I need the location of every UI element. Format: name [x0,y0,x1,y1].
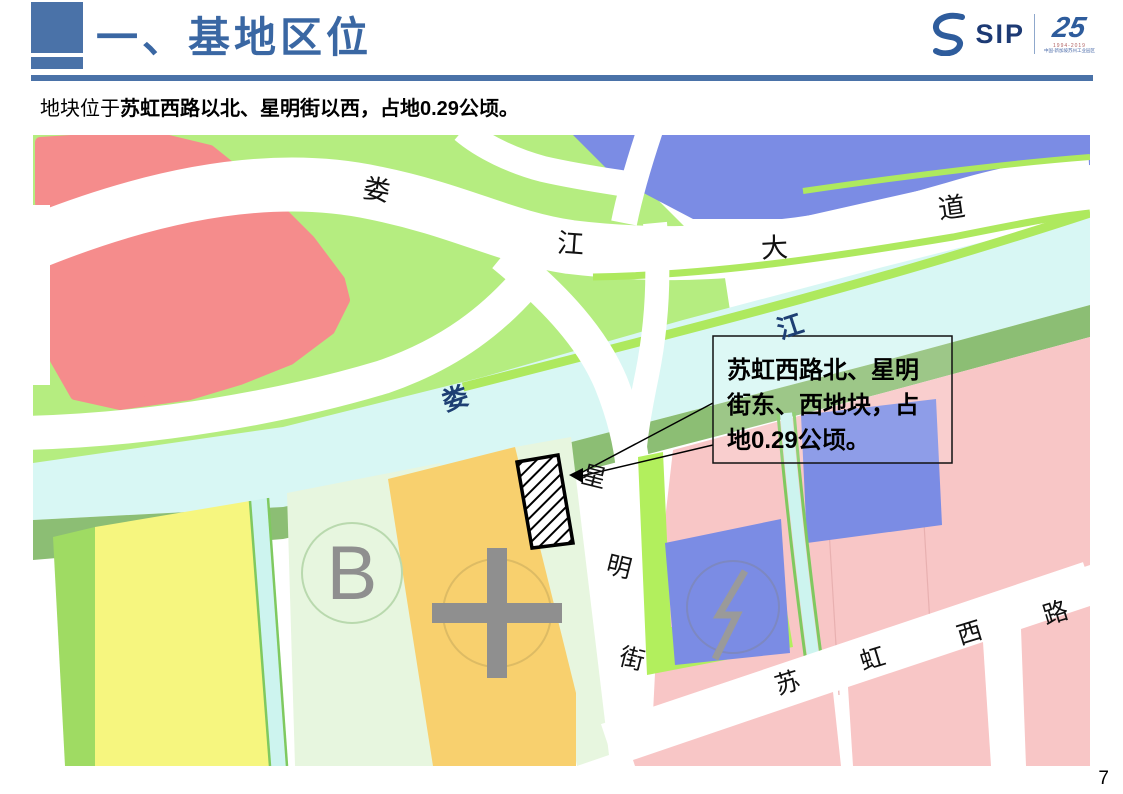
avenue-label-char: 江 [556,228,585,260]
avenue-label-char: 道 [936,191,967,224]
avenue-label-char: 娄 [361,173,393,207]
site-location-map: B 苏虹西路北、星明 街东、西地块，占 地0.29公顷。 娄 江 大 道 娄 江… [33,135,1090,766]
pink-block-southeast [1021,606,1090,766]
parcel-b-label: B [327,531,378,616]
anniversary-25: 25 [1051,14,1088,43]
hospital-cross-icon [487,548,507,678]
slide-subtitle: 地块位于苏虹西路以北、星明街以西，占地0.29公顷。 [40,92,519,121]
yellow-parcel [95,501,270,766]
callout-text-line3: 地0.29公顷。 [727,427,870,454]
avenue-label-char: 大 [760,232,789,263]
page-number: 7 [1098,768,1109,790]
subtitle-emphasis: 苏虹西路以北、星明街以西，占地0.29公顷。 [120,98,519,120]
header-underline [31,75,1093,81]
title-decoration-bar [31,57,83,69]
callout-text-line2: 街东、西地块，占 [726,391,919,419]
anniversary-logo: 25 1994-2019 中国-新加坡苏州工业园区 [1044,14,1095,54]
page-title: 一、基地区位 [96,4,372,65]
title-decoration-square [31,2,83,53]
logo-divider [1034,14,1035,54]
sip-logo-text: SIP [975,19,1025,50]
substation-parcel [665,519,790,665]
sip-swoosh-icon [932,12,966,56]
anniversary-caption: 中国-新加坡苏州工业园区 [1044,49,1095,54]
sip-logo: SIP 25 1994-2019 中国-新加坡苏州工业园区 [932,12,1095,56]
callout-text-line1: 苏虹西路北、星明 [727,356,919,384]
subtitle-prefix: 地块位于 [40,98,120,120]
